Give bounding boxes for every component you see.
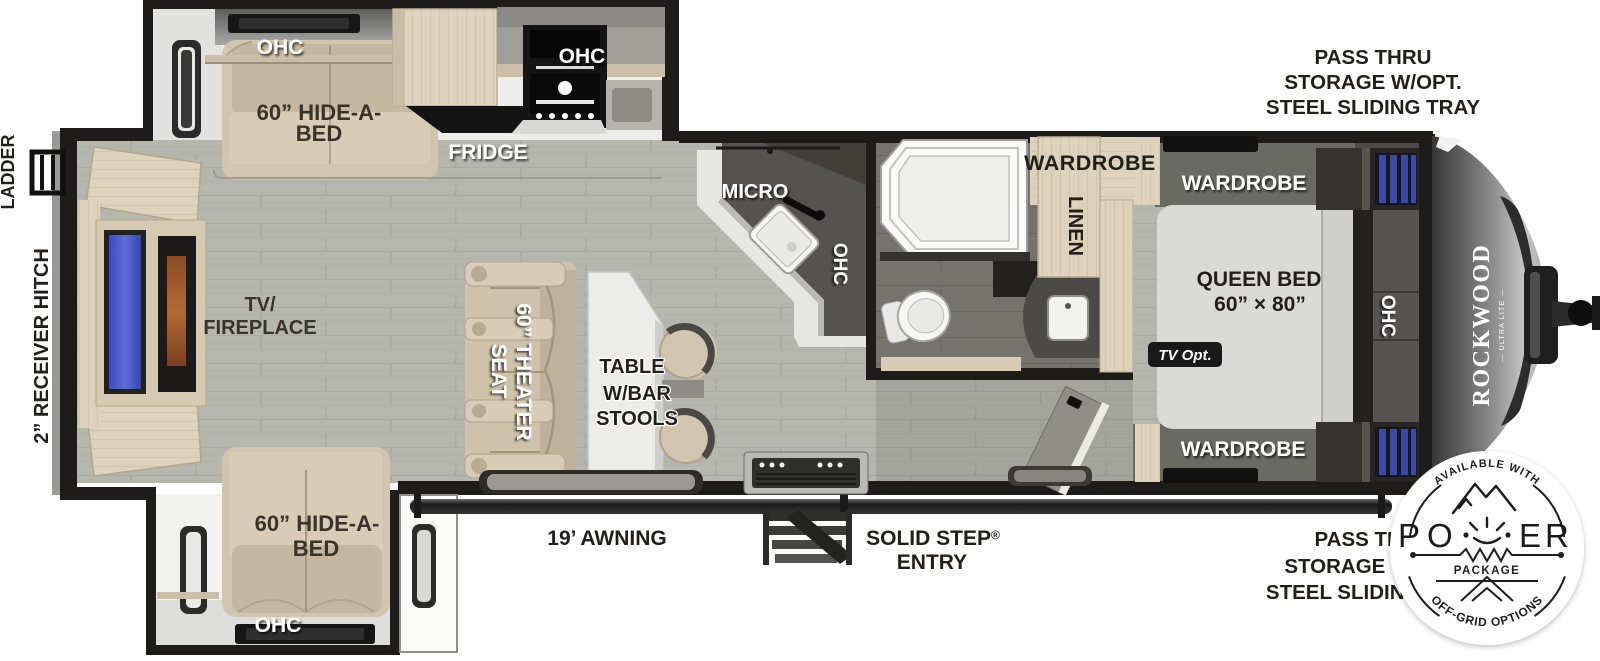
- svg-text:LINEN: LINEN: [1064, 196, 1086, 256]
- svg-text:PASS THRU: PASS THRU: [1315, 46, 1432, 69]
- svg-text:OHC: OHC: [1377, 295, 1398, 338]
- svg-text:WARDROBE: WARDROBE: [1181, 438, 1306, 461]
- svg-text:WARDROBE: WARDROBE: [1024, 151, 1156, 175]
- svg-text:PACKAGE: PACKAGE: [1454, 565, 1520, 577]
- svg-text:BED: BED: [296, 121, 342, 146]
- svg-text:2” RECEIVER HITCH: 2” RECEIVER HITCH: [31, 248, 53, 444]
- svg-text:STOOLS: STOOLS: [596, 408, 678, 430]
- svg-text:60” × 80”: 60” × 80”: [1214, 293, 1306, 316]
- svg-text:O: O: [1427, 517, 1453, 554]
- svg-text:MICRO: MICRO: [722, 181, 789, 203]
- svg-text:OHC: OHC: [255, 614, 302, 637]
- svg-text:OHC: OHC: [559, 45, 606, 68]
- svg-text:60” THEATER: 60” THEATER: [512, 303, 535, 440]
- svg-text:SEAT: SEAT: [487, 344, 510, 399]
- svg-text:STEEL SLIDING TRAY: STEEL SLIDING TRAY: [1266, 96, 1480, 119]
- svg-text:60” HIDE-A-: 60” HIDE-A-: [255, 511, 380, 536]
- svg-text:LADDER: LADDER: [0, 135, 18, 210]
- svg-text:FRIDGE: FRIDGE: [448, 141, 527, 164]
- svg-text:OHC: OHC: [829, 243, 850, 286]
- svg-text:WARDROBE: WARDROBE: [1182, 172, 1307, 195]
- svg-text:— ULTRA LITE —: — ULTRA LITE —: [1499, 288, 1506, 361]
- svg-text:ENTRY: ENTRY: [897, 551, 967, 574]
- svg-text:TV Opt.: TV Opt.: [1158, 347, 1211, 364]
- svg-text:W/BAR: W/BAR: [603, 383, 671, 405]
- svg-text:STORAGE W/OPT.: STORAGE W/OPT.: [1284, 71, 1461, 94]
- svg-text:R: R: [1545, 517, 1569, 554]
- svg-text:SOLID STEP®: SOLID STEP®: [866, 527, 1000, 550]
- svg-text:BED: BED: [293, 536, 339, 561]
- svg-text:P: P: [1398, 517, 1420, 554]
- svg-text:TV/: TV/: [244, 294, 276, 316]
- svg-text:QUEEN BED: QUEEN BED: [1197, 268, 1322, 291]
- svg-text:OHC: OHC: [257, 36, 304, 59]
- svg-text:E: E: [1519, 517, 1541, 554]
- svg-text:19’ AWNING: 19’ AWNING: [547, 527, 666, 550]
- svg-text:TABLE: TABLE: [599, 356, 664, 378]
- svg-text:FIREPLACE: FIREPLACE: [203, 317, 316, 339]
- svg-text:ROCKWOOD: ROCKWOOD: [1469, 244, 1495, 407]
